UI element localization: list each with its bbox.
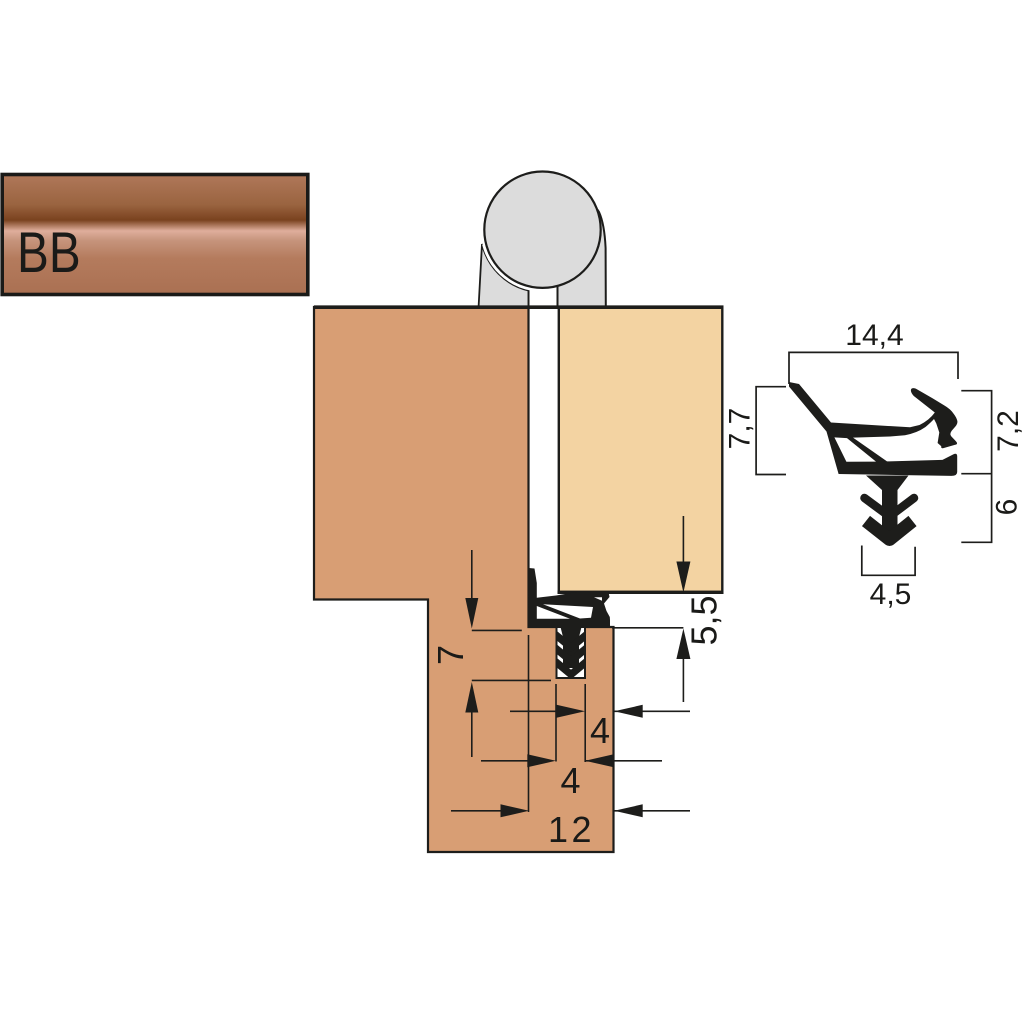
svg-text:14,4: 14,4 bbox=[845, 319, 903, 352]
svg-text:7: 7 bbox=[430, 645, 471, 665]
svg-text:7,7: 7,7 bbox=[724, 408, 757, 450]
svg-text:BB: BB bbox=[17, 221, 81, 285]
svg-text:5,5: 5,5 bbox=[684, 595, 725, 645]
svg-text:12: 12 bbox=[548, 809, 595, 850]
svg-text:4,5: 4,5 bbox=[870, 578, 912, 611]
svg-text:4: 4 bbox=[590, 710, 610, 751]
svg-text:4: 4 bbox=[560, 760, 580, 801]
svg-text:6: 6 bbox=[991, 499, 1024, 516]
svg-text:7,2: 7,2 bbox=[992, 410, 1024, 452]
